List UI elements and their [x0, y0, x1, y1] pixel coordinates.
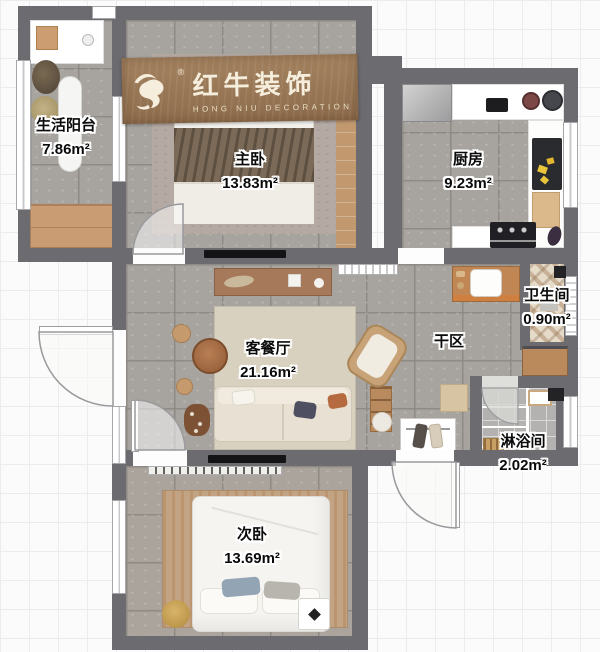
room-label-master-bedroom: 主卧 13.83m²	[222, 152, 278, 192]
room-area: 21.16m²	[240, 365, 296, 381]
brand-name-en: HONG NIU DECORATION	[193, 102, 353, 114]
room-label-living-dining: 客餐厅 21.16m²	[240, 341, 296, 381]
room-area: 13.83m²	[222, 176, 278, 192]
room-label-secondary-bedroom: 次卧 13.69m²	[224, 527, 280, 567]
brand-banner: ® 红牛装饰 HONG NIU DECORATION	[121, 54, 358, 124]
brand-name-cn: 红牛装饰	[192, 63, 352, 103]
banner-text: 红牛装饰 HONG NIU DECORATION	[192, 63, 352, 114]
room-name: 卫生间	[524, 288, 569, 304]
shower-door-arc	[482, 388, 518, 424]
room-name: 客餐厅	[245, 341, 290, 357]
bull-logo-icon	[128, 68, 179, 113]
master-door-arc	[133, 204, 183, 254]
room-label-balcony: 生活阳台 7.86m²	[36, 118, 96, 158]
room-area: 0.90m²	[523, 312, 571, 328]
room-area: 9.23m²	[444, 176, 492, 192]
room-name: 生活阳台	[36, 118, 96, 134]
room-name: 厨房	[453, 152, 483, 168]
registered-mark: ®	[177, 67, 184, 77]
floor-plan: ® 红牛装饰 HONG NIU DECORATION 生活阳台 7.86m² 主…	[0, 0, 600, 652]
room-name: 干区	[434, 334, 464, 350]
room-name: 次卧	[237, 527, 267, 543]
entry-door-arc	[392, 462, 456, 528]
room-label-dry-area: 干区	[434, 334, 464, 350]
room-name: 主卧	[235, 152, 265, 168]
room-area: 2.02m²	[499, 458, 547, 474]
room-label-bathroom: 卫生间 0.90m²	[523, 288, 571, 328]
secondary-door-arc	[135, 400, 185, 450]
room-name: 淋浴间	[500, 434, 545, 450]
room-area: 7.86m²	[42, 142, 90, 158]
room-area: 13.69m²	[224, 551, 280, 567]
room-label-shower-room: 淋浴间 2.02m²	[499, 434, 547, 474]
room-label-kitchen: 厨房 9.23m²	[444, 152, 492, 192]
balcony-ext-door-arc	[39, 332, 113, 406]
